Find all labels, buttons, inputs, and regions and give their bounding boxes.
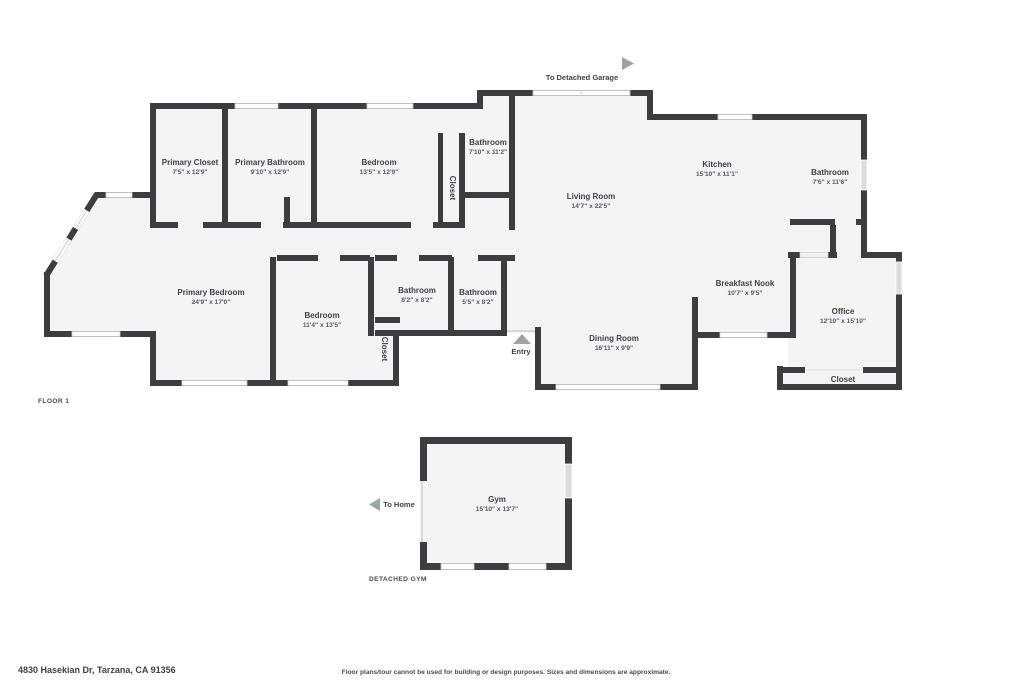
floor-plan-page: { "page": { "floor1_label": "FLOOR 1", "… [0, 0, 1024, 683]
svg-text:5'5" x 8'2": 5'5" x 8'2" [462, 299, 493, 306]
room-hall-bathroom: Bathroom [469, 138, 507, 147]
garage-arrow-icon [622, 57, 634, 70]
svg-text:12'10" x 15'10": 12'10" x 15'10" [820, 318, 866, 325]
floor1-label: FLOOR 1 [38, 398, 69, 405]
room-bedroom-bottom: Bedroom [304, 311, 339, 320]
office-doorway [800, 253, 828, 258]
room-right-bathroom: Bathroom [811, 168, 849, 177]
room-primary-bathroom: Primary Bathroom [235, 158, 305, 167]
svg-text:7'6" x 11'6": 7'6" x 11'6" [813, 179, 848, 186]
svg-text:24'9" x 17'0": 24'9" x 17'0" [192, 299, 231, 306]
room-office-closet: Closet [831, 375, 856, 384]
detached-gym-plan: Gym 15'10" x 13'7" To Home DETACHED GYM [369, 437, 572, 583]
to-home-label: To Home [383, 500, 415, 509]
room-bedroom-closet: Closet [380, 337, 389, 362]
svg-text:11'4" x 13'5": 11'4" x 13'5" [303, 322, 341, 329]
room-primary-bedroom: Primary Bedroom [177, 288, 244, 297]
svg-text:9'10" x 12'9": 9'10" x 12'9" [251, 169, 290, 176]
room-primary-closet: Primary Closet [162, 158, 219, 167]
svg-text:8'2" x 8'2": 8'2" x 8'2" [401, 297, 432, 304]
room-dining: Dining Room [589, 334, 639, 343]
house-footprint [44, 90, 902, 390]
svg-text:7'10" x 11'2": 7'10" x 11'2" [469, 149, 507, 156]
room-breakfast-nook: Breakfast Nook [716, 279, 775, 288]
to-detached-garage-label: To Detached Garage [546, 73, 618, 82]
room-kitchen: Kitchen [702, 160, 731, 169]
svg-text:10'7" x 9'5": 10'7" x 9'5" [727, 290, 762, 297]
room-living: Living Room [567, 192, 615, 201]
entry-label: Entry [511, 347, 531, 356]
footer: 4830 Hasekian Dr, Tarzana, CA 91356 Floo… [18, 665, 670, 676]
room-hall-closet: Closet [448, 176, 457, 201]
room-office: Office [832, 307, 855, 316]
room-bathroom-82: Bathroom [398, 286, 436, 295]
floor-plan-svg: Primary Closet 7'5" x 12'9" Primary Bath… [0, 0, 1024, 683]
room-bedroom-top: Bedroom [361, 158, 396, 167]
entry-arrow-icon [513, 334, 531, 344]
disclaimer-label: Floor plans/tour cannot be used for buil… [342, 669, 671, 676]
svg-text:16'11" x 9'9": 16'11" x 9'9" [595, 345, 633, 352]
home-arrow-icon [369, 498, 380, 511]
room-bathroom-55: Bathroom [459, 288, 497, 297]
svg-text:7'5" x 12'9": 7'5" x 12'9" [172, 169, 207, 176]
address-label: 4830 Hasekian Dr, Tarzana, CA 91356 [18, 665, 176, 675]
svg-text:15'10" x 11'1": 15'10" x 11'1" [696, 171, 738, 178]
detached-gym-label: DETACHED GYM [369, 576, 427, 583]
floor1-plan: Primary Closet 7'5" x 12'9" Primary Bath… [38, 57, 902, 405]
svg-text:14'7" x 22'5": 14'7" x 22'5" [572, 203, 611, 210]
room-gym: Gym [488, 495, 506, 504]
svg-text:15'10" x 13'7": 15'10" x 13'7" [476, 506, 518, 513]
svg-text:13'5" x 12'9": 13'5" x 12'9" [360, 169, 399, 176]
